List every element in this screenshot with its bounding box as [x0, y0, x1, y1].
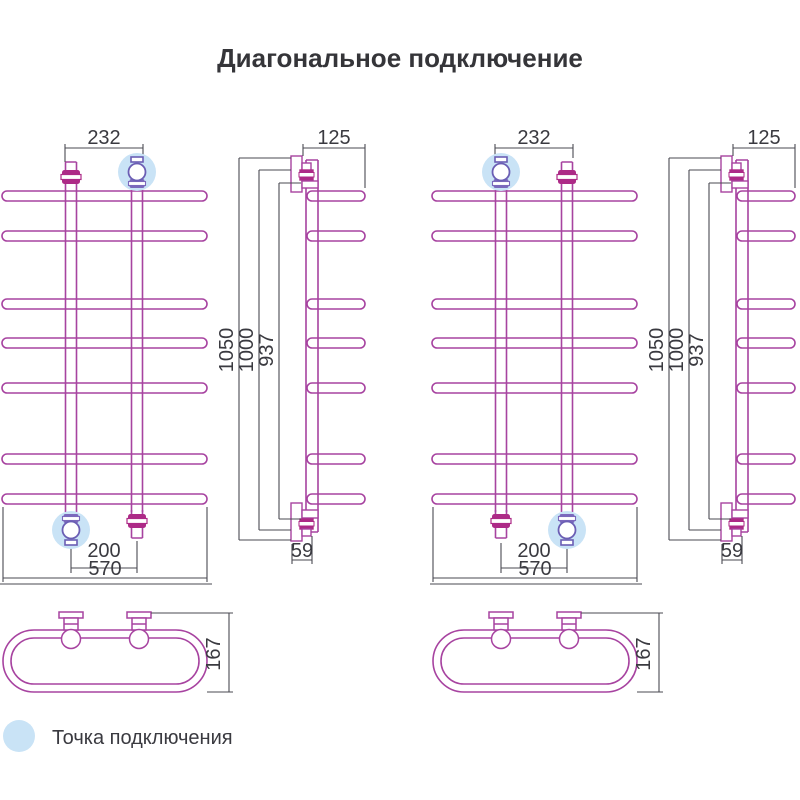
top-view-left: 167 [3, 612, 233, 692]
nut-valve-top-left [61, 170, 81, 184]
dim-top-width: 232 [517, 127, 550, 149]
top-view-body [433, 612, 663, 692]
front-view-body [0, 144, 212, 584]
front-view-left-variant: 232 200 570 [0, 127, 212, 584]
connection-point-legend-swatch [3, 720, 35, 752]
nut-valve-top-right [557, 170, 577, 184]
legend: Точка подключения [3, 720, 233, 752]
ball-valve-top-right [129, 157, 146, 188]
dim-depth: 125 [747, 127, 780, 149]
dim-inner-height: 937 [256, 333, 278, 366]
dim-connection-height: 1000 [236, 328, 258, 373]
dim-top-view-depth: 167 [203, 637, 225, 670]
dim-connection-height: 1000 [666, 328, 688, 373]
side-view-left: 125 1050 1000 937 59 [216, 127, 365, 564]
dim-inner-height: 937 [686, 333, 708, 366]
ball-valve-bottom-left [63, 514, 80, 545]
dim-bottom-offset: 59 [291, 540, 313, 562]
nut-valve-bottom-left [491, 514, 511, 528]
dim-depth: 125 [317, 127, 350, 149]
front-view-right-variant: 232 200 570 [430, 127, 642, 584]
towel-rail-diagram: Диагональное подключение 232 200 570 125… [0, 0, 800, 800]
dim-overall-height: 1050 [646, 328, 668, 373]
side-view-right: 125 1050 1000 937 59 [646, 127, 795, 564]
ball-valve-top-left [493, 157, 510, 188]
dim-overall-width: 570 [88, 558, 121, 580]
diagram-page: Диагональное подключение 232 200 570 125… [0, 0, 800, 800]
top-view-body [3, 612, 233, 692]
dim-top-width: 232 [87, 127, 120, 149]
ball-valve-bottom-right [559, 514, 576, 545]
top-view-right: 167 [433, 612, 663, 692]
dim-bottom-offset: 59 [721, 540, 743, 562]
dim-top-view-depth: 167 [633, 637, 655, 670]
page-title: Диагональное подключение [217, 43, 583, 73]
dim-overall-width: 570 [518, 558, 551, 580]
legend-label: Точка подключения [52, 727, 233, 749]
front-view-body [430, 144, 642, 584]
dim-overall-height: 1050 [216, 328, 238, 373]
nut-valve-bottom-right [127, 514, 147, 528]
